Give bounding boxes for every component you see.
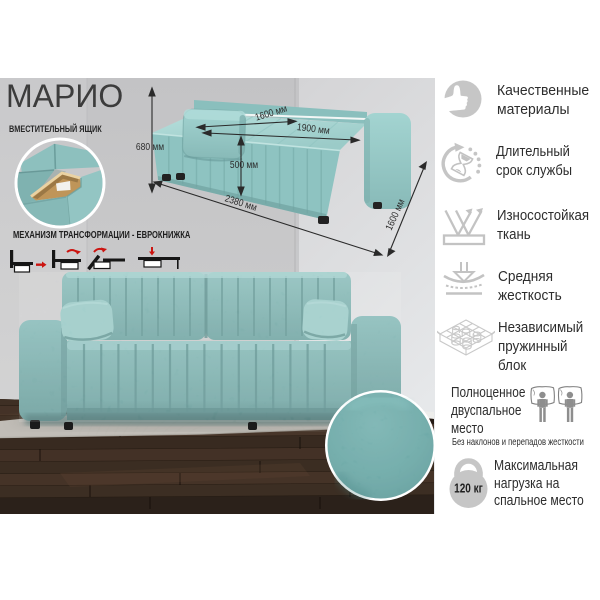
svg-text:120 кг: 120 кг [454, 481, 483, 496]
svg-text:500 мм: 500 мм [230, 159, 258, 170]
svg-text:680 мм: 680 мм [136, 141, 164, 152]
